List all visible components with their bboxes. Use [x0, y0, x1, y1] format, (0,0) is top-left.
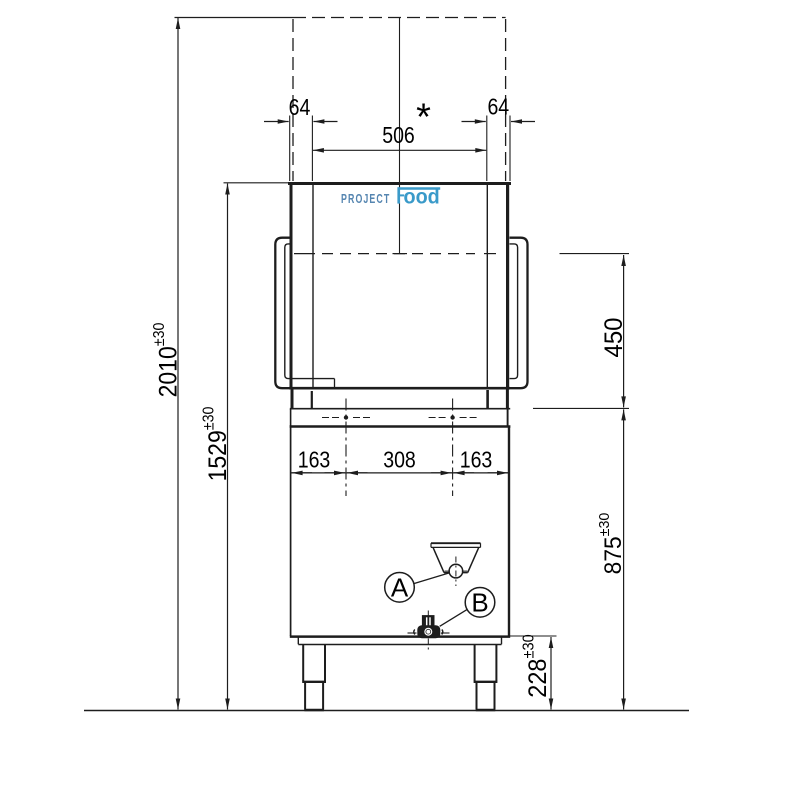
svg-text:308: 308: [383, 447, 416, 473]
svg-text:*: *: [416, 97, 431, 139]
svg-text:A: A: [391, 573, 409, 603]
svg-text:450: 450: [601, 317, 629, 357]
svg-text:506: 506: [382, 123, 415, 149]
svg-text:ood: ood: [404, 185, 440, 209]
svg-text:B: B: [471, 588, 488, 618]
svg-text:875±30: 875±30: [597, 513, 626, 575]
svg-text:PROJECT: PROJECT: [341, 193, 390, 207]
svg-text:64: 64: [289, 95, 311, 121]
svg-text:64: 64: [487, 94, 509, 120]
svg-text:228±30: 228±30: [520, 634, 552, 697]
svg-text:163: 163: [298, 447, 331, 473]
svg-text:163: 163: [460, 447, 493, 473]
